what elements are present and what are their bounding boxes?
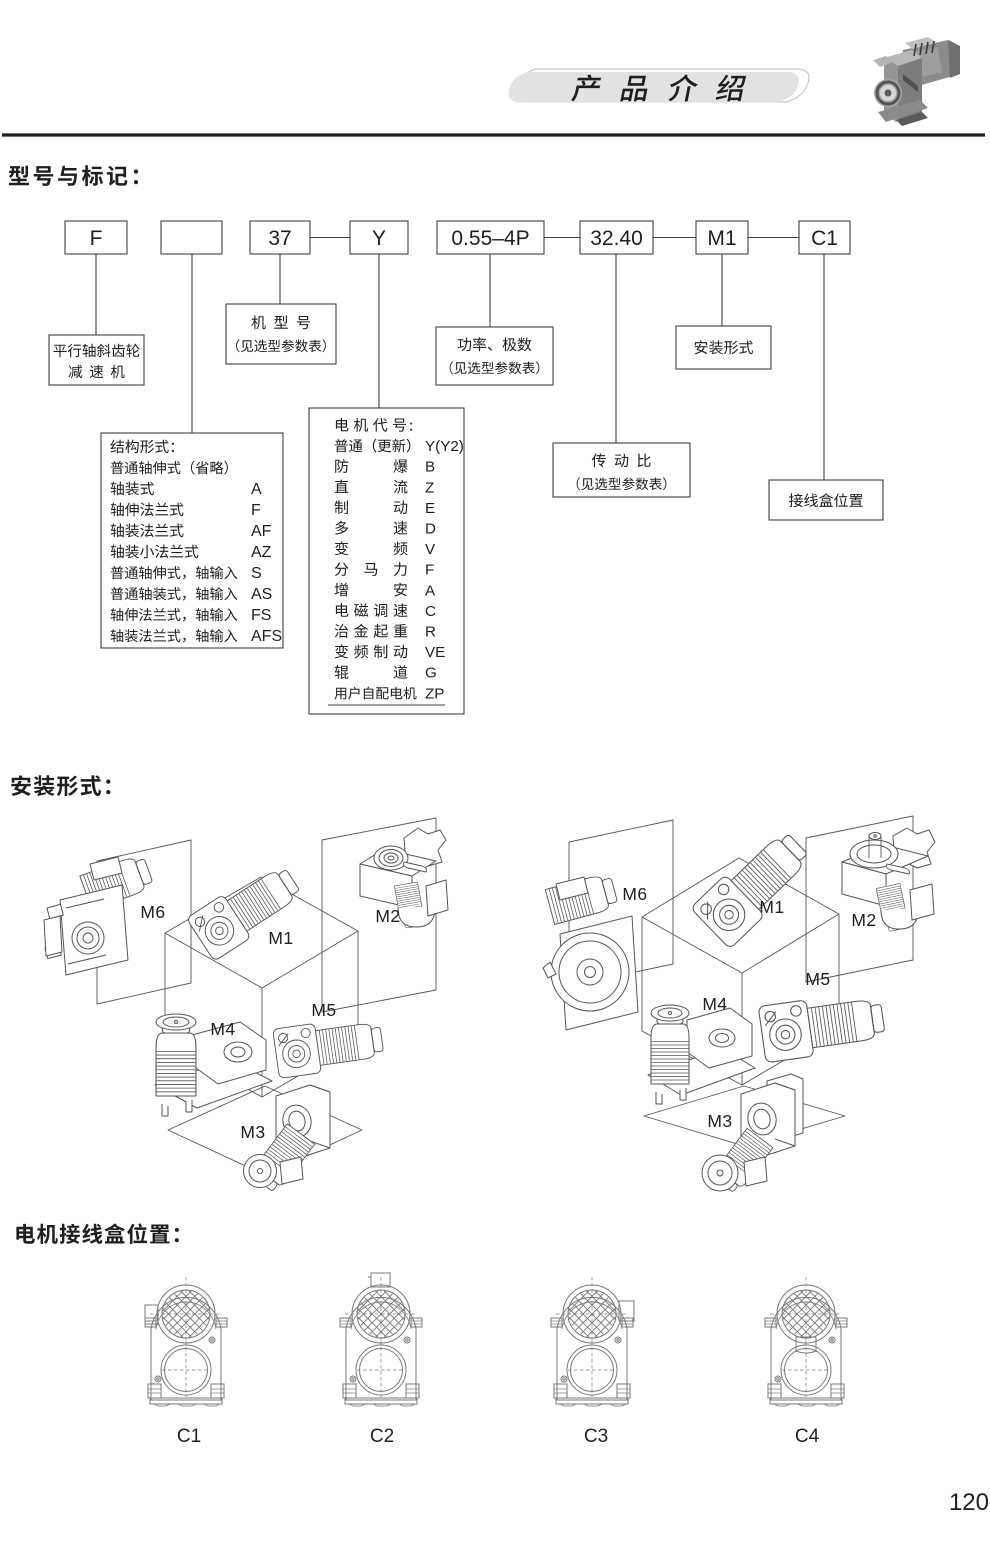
svg-text:M4: M4	[702, 994, 727, 1014]
svg-text:F: F	[425, 562, 434, 579]
svg-text:Z: Z	[425, 479, 434, 496]
svg-text:M1: M1	[268, 928, 293, 948]
svg-text:C4: C4	[795, 1426, 820, 1447]
svg-text:M6: M6	[140, 902, 165, 922]
svg-text:M2: M2	[851, 910, 876, 930]
svg-text:S: S	[251, 565, 262, 582]
svg-text:AS: AS	[251, 586, 272, 603]
svg-text:F: F	[251, 502, 261, 519]
svg-text:AZ: AZ	[251, 544, 272, 561]
svg-text:32.40: 32.40	[590, 227, 643, 250]
svg-text:M3: M3	[240, 1122, 265, 1142]
svg-text:A: A	[425, 582, 436, 599]
svg-text:M1: M1	[759, 897, 784, 917]
svg-text:M4: M4	[210, 1019, 235, 1039]
svg-text:M5: M5	[805, 969, 830, 989]
svg-text:M2: M2	[375, 906, 400, 926]
svg-text:C3: C3	[584, 1426, 608, 1447]
svg-text:F: F	[90, 227, 103, 250]
svg-text:E: E	[425, 500, 435, 517]
svg-text:Y: Y	[372, 227, 386, 250]
svg-text:C: C	[425, 603, 436, 620]
svg-text:A: A	[251, 481, 262, 498]
svg-text:M3: M3	[707, 1111, 732, 1131]
svg-text:G: G	[425, 665, 437, 682]
svg-text:M5: M5	[311, 1000, 336, 1020]
svg-text:D: D	[425, 521, 436, 538]
svg-text:C2: C2	[370, 1426, 394, 1447]
svg-text:M6: M6	[622, 884, 647, 904]
svg-text:VE: VE	[425, 644, 445, 661]
svg-text:V: V	[425, 541, 436, 558]
svg-text:R: R	[425, 624, 436, 641]
svg-text:37: 37	[268, 227, 291, 250]
svg-text:ZP: ZP	[425, 685, 444, 702]
svg-text:M1: M1	[707, 227, 736, 250]
svg-text:C1: C1	[811, 227, 838, 250]
svg-text:B: B	[425, 459, 435, 476]
svg-text:FS: FS	[251, 607, 271, 624]
svg-text:C1: C1	[177, 1426, 201, 1447]
svg-text:120: 120	[949, 1489, 989, 1516]
svg-text:0.55–4P: 0.55–4P	[451, 227, 529, 250]
svg-text:AFS: AFS	[251, 628, 282, 645]
svg-text:Y(Y2): Y(Y2)	[425, 438, 464, 455]
svg-text:AF: AF	[251, 523, 272, 540]
